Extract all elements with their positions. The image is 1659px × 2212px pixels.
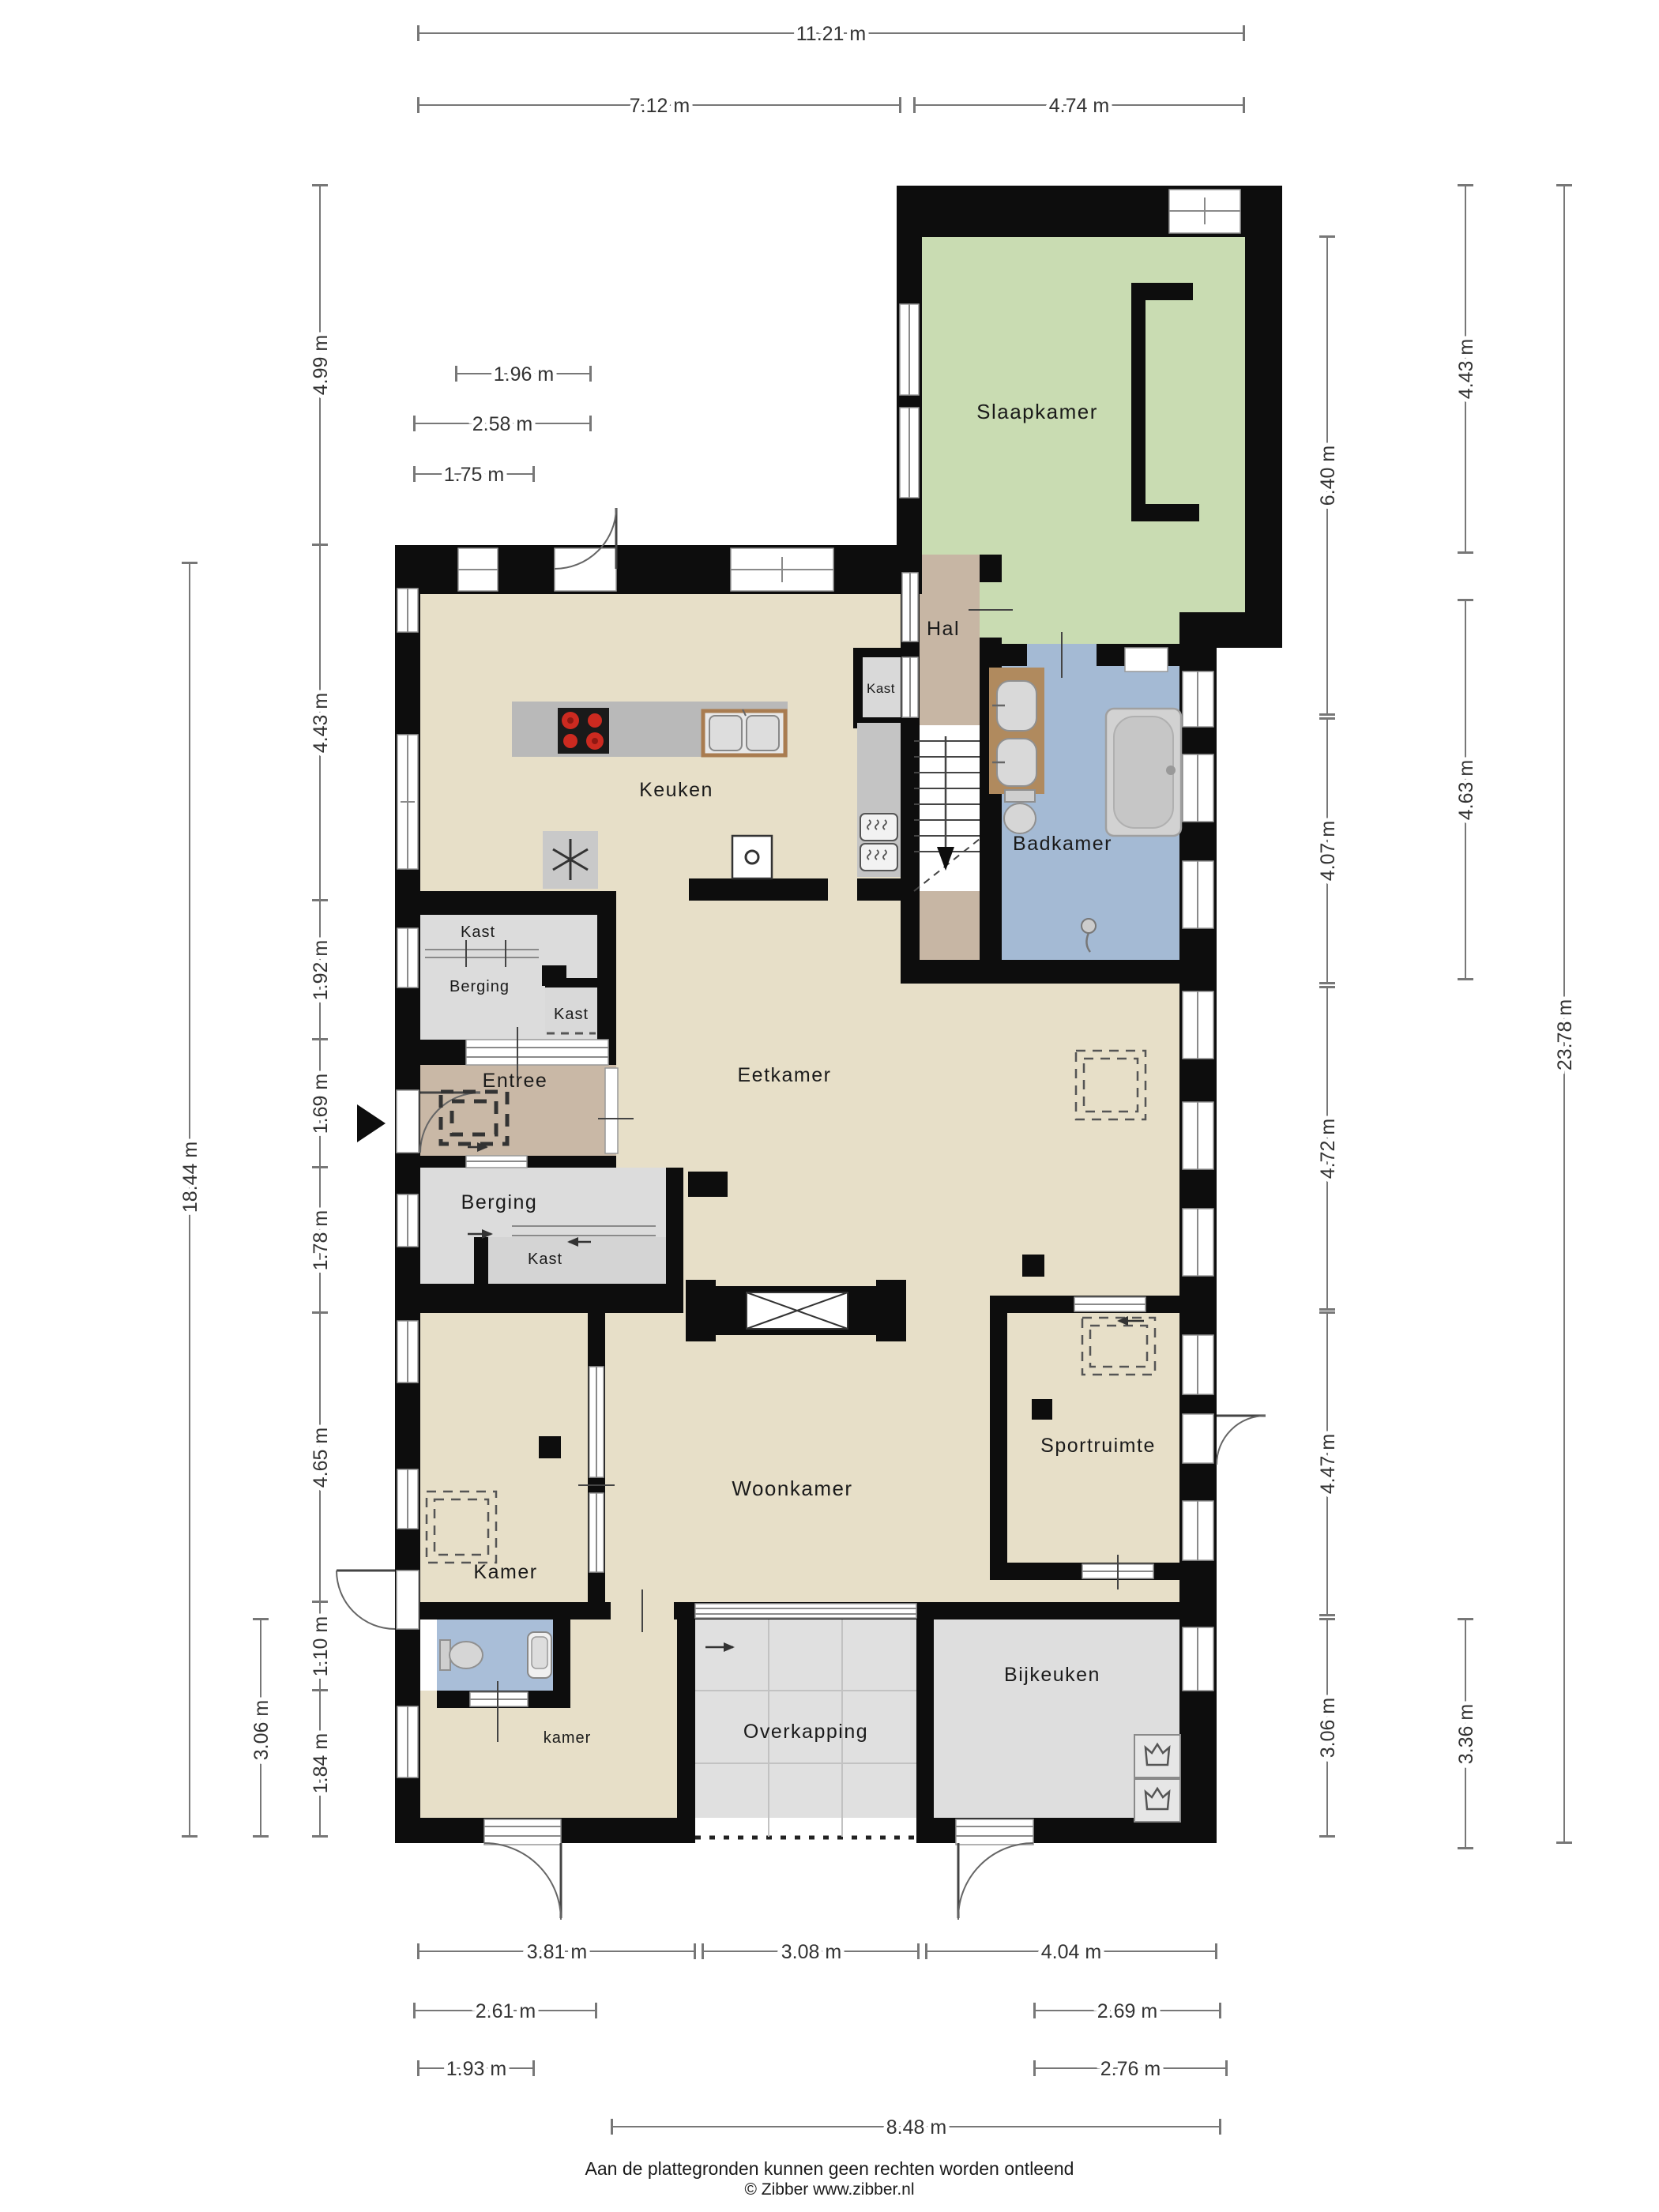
dryer-icon <box>1134 1779 1180 1822</box>
window <box>397 1321 418 1382</box>
wall-cabinet-stub <box>857 878 920 901</box>
svg-text:3.81 m: 3.81 m <box>527 1941 587 1963</box>
svg-text:18.44 m: 18.44 m <box>179 1142 201 1213</box>
room-label-kast-hal: Kast <box>867 681 895 696</box>
entrance-arrow-icon <box>357 1104 386 1142</box>
dim-bottom-1: 3.81 m <box>419 1941 695 1963</box>
dim-bottom-2: 3.08 m <box>703 1941 919 1963</box>
window <box>458 548 498 591</box>
dim-bottom-8: 8.48 m <box>612 2116 1221 2139</box>
window <box>1183 1209 1213 1276</box>
room-label-kast-onder: Kast <box>528 1251 562 1268</box>
door-kamer-bottom <box>484 1819 561 1845</box>
svg-text:1.69 m: 1.69 m <box>310 1074 332 1134</box>
column-kamer <box>539 1436 561 1458</box>
bath-vanity-icon <box>989 668 1044 794</box>
floorplan: Slaapkamer Hal Kast Keuken Badkamer Kast… <box>0 0 1659 2212</box>
wall-block-right <box>597 891 616 1065</box>
dim-left-6: 4.65 m <box>310 1313 332 1602</box>
wall-block-bottom <box>395 1284 683 1313</box>
window <box>900 304 919 395</box>
dim-mini-3: 1.75 m <box>415 464 534 486</box>
dim-left-1: 4.99 m <box>310 186 332 545</box>
svg-text:1.92 m: 1.92 m <box>310 940 332 1000</box>
wall-utility-left <box>916 1619 934 1819</box>
window <box>731 548 833 591</box>
toilet-icon <box>1004 790 1036 833</box>
room-label-kast-klein: Kast <box>554 1006 589 1023</box>
svg-text:2.69 m: 2.69 m <box>1097 2000 1157 2022</box>
window <box>1183 1501 1213 1560</box>
svg-text:1.93 m: 1.93 m <box>446 2058 506 2080</box>
svg-text:4.74 m: 4.74 m <box>1049 95 1109 117</box>
dim-right-mid-1: 4.43 m <box>1455 186 1477 553</box>
wall-kitchen-hall <box>901 594 920 960</box>
svg-text:1.96 m: 1.96 m <box>494 363 554 386</box>
room-label-eetkamer: Eetkamer <box>738 1064 832 1086</box>
door-utility-bottom <box>956 1819 1033 1845</box>
dim-left-5: 1.78 m <box>310 1168 332 1313</box>
wall-smallbath-right <box>553 1619 570 1691</box>
kitchen-island-icon <box>512 702 788 757</box>
wall-kitchen-stub <box>689 878 828 901</box>
door-kitchen-top <box>555 548 616 591</box>
window <box>397 928 418 987</box>
dim-bottom-7: 2.76 m <box>1035 2058 1227 2080</box>
window <box>397 1469 418 1529</box>
svg-text:4.47 m: 4.47 m <box>1317 1434 1339 1494</box>
room-label-kamer: Kamer <box>473 1561 537 1583</box>
footer-copyright: © Zibber www.zibber.nl <box>0 2180 1659 2199</box>
small-bath-niche <box>420 1619 437 1691</box>
svg-text:4.43 m: 4.43 m <box>1455 339 1477 399</box>
bath-niche <box>1125 648 1168 671</box>
svg-text:11.21 m: 11.21 m <box>796 23 866 45</box>
dim-bottom-3: 4.04 m <box>927 1941 1217 1963</box>
interior-window <box>589 1493 604 1572</box>
fireplace-icon <box>686 1280 906 1341</box>
svg-text:2.58 m: 2.58 m <box>472 413 532 435</box>
dim-left-2: 4.43 m <box>310 545 332 901</box>
dim-right-4: 4.47 m <box>1317 1313 1339 1616</box>
closet-bottom-floor <box>488 1237 666 1284</box>
svg-text:3.06 m: 3.06 m <box>250 1700 273 1760</box>
svg-text:4.63 m: 4.63 m <box>1455 760 1477 820</box>
small-toilet-icon <box>440 1640 483 1670</box>
dim-right-2: 4.07 m <box>1317 719 1339 984</box>
svg-text:1.84 m: 1.84 m <box>310 1733 332 1793</box>
dim-right-1: 6.40 m <box>1317 237 1339 715</box>
svg-text:23.78 m: 23.78 m <box>1554 999 1576 1070</box>
wall-kastklein-top <box>545 978 597 987</box>
room-label-keuken: Keuken <box>639 779 713 801</box>
window <box>900 408 919 498</box>
interior-window <box>902 573 918 641</box>
svg-text:6.40 m: 6.40 m <box>1317 446 1339 506</box>
window <box>1183 671 1213 727</box>
oven-cabinet-icon <box>857 723 901 877</box>
room-label-slaapkamer: Slaapkamer <box>976 400 1098 423</box>
dim-mini-1: 1.96 m <box>457 363 591 386</box>
svg-text:1.10 m: 1.10 m <box>310 1616 332 1676</box>
wall-hall-bottom <box>901 960 1181 984</box>
svg-text:3.36 m: 3.36 m <box>1455 1704 1477 1764</box>
room-label-sportruimte: Sportruimte <box>1040 1435 1156 1457</box>
wall-kast-hal-left <box>853 648 863 728</box>
svg-text:2.61 m: 2.61 m <box>476 2000 536 2022</box>
pier-eetkamer <box>688 1172 728 1197</box>
room-label-kast-boven: Kast <box>461 924 495 941</box>
window <box>1183 861 1213 928</box>
window <box>1183 991 1213 1059</box>
dim-bottom-5: 2.69 m <box>1035 2000 1221 2022</box>
sliding-door <box>466 1156 527 1168</box>
window <box>1169 190 1240 233</box>
room-label-overkapping: Overkapping <box>743 1721 868 1743</box>
room-label-berging-boven: Berging <box>450 978 510 995</box>
sliding-door <box>695 1604 916 1618</box>
room-label-badkamer: Badkamer <box>1013 833 1112 855</box>
svg-text:2.76 m: 2.76 m <box>1100 2058 1161 2080</box>
dim-top-left: 7.12 m <box>419 95 901 117</box>
dim-bottom-4: 2.61 m <box>415 2000 596 2022</box>
svg-text:4.65 m: 4.65 m <box>310 1428 332 1488</box>
dim-left-8: 1.84 m <box>310 1691 332 1837</box>
wall-berging2-right <box>666 1168 683 1284</box>
footer-disclaimer: Aan de plattegronden kunnen geen rechten… <box>0 2158 1659 2180</box>
dim-right-3: 4.72 m <box>1317 987 1339 1310</box>
window <box>1183 1335 1213 1394</box>
svg-text:3.06 m: 3.06 m <box>1317 1698 1339 1758</box>
dim-right-outer: 23.78 m <box>1554 186 1576 1843</box>
room-label-bijkeuken: Bijkeuken <box>1004 1664 1100 1686</box>
dim-right-mid-2: 4.63 m <box>1455 600 1477 980</box>
window <box>397 1706 418 1777</box>
svg-text:8.48 m: 8.48 m <box>886 2116 946 2139</box>
window <box>1183 1102 1213 1169</box>
dim-mini-2: 2.58 m <box>415 413 591 435</box>
wall-sport-left <box>990 1296 1007 1580</box>
dim-top-total: 11.21 m <box>419 23 1244 45</box>
window <box>1183 754 1213 822</box>
svg-text:4.07 m: 4.07 m <box>1317 821 1339 881</box>
svg-text:3.08 m: 3.08 m <box>781 1941 841 1963</box>
interior-window <box>902 657 918 717</box>
dim-top-right: 4.74 m <box>915 95 1244 117</box>
svg-text:7.12 m: 7.12 m <box>630 95 690 117</box>
washer-icon <box>1134 1735 1180 1777</box>
dim-bottom-6: 1.93 m <box>419 2058 534 2080</box>
wall-block-top <box>395 891 616 915</box>
column-eetkamer <box>1022 1255 1044 1277</box>
svg-text:4.99 m: 4.99 m <box>310 335 332 395</box>
dim-left-outer: 18.44 m <box>179 563 201 1837</box>
window <box>397 589 418 632</box>
room-label-berging-onder: Berging <box>461 1191 538 1213</box>
window <box>1183 1627 1213 1691</box>
dim-left-3: 1.92 m <box>310 901 332 1040</box>
room-label-woonkamer: Woonkamer <box>732 1477 852 1500</box>
bathtub-icon <box>1106 709 1181 836</box>
hob-unit-icon <box>732 836 772 878</box>
wall-kamerklein-right <box>677 1619 695 1819</box>
room-label-kamer-klein: kamer <box>544 1729 592 1747</box>
svg-text:4.72 m: 4.72 m <box>1317 1119 1339 1179</box>
svg-text:4.43 m: 4.43 m <box>310 693 332 753</box>
dim-left-4: 1.69 m <box>310 1040 332 1168</box>
door-kamer-left <box>397 1571 419 1629</box>
dim-right-mid-3: 3.36 m <box>1455 1619 1477 1849</box>
room-label-entree: Entree <box>483 1070 548 1092</box>
small-sink-icon <box>528 1632 551 1678</box>
sink-icon <box>703 709 785 755</box>
wall-bedroom-right <box>1245 186 1282 648</box>
svg-text:4.04 m: 4.04 m <box>1041 1941 1101 1963</box>
room-label-hal: Hal <box>927 618 960 640</box>
interior-window <box>1074 1297 1145 1311</box>
window <box>397 1194 418 1247</box>
wall-step <box>1179 612 1282 648</box>
dim-left-7: 1.10 m <box>310 1602 332 1691</box>
window <box>397 735 418 869</box>
ventilation-icon <box>543 831 598 889</box>
svg-text:1.75 m: 1.75 m <box>444 464 504 486</box>
front-door <box>397 1090 419 1153</box>
interior-window <box>589 1367 604 1477</box>
column-sport <box>1032 1399 1052 1420</box>
wall-kast3-left <box>474 1237 488 1284</box>
floor-areas <box>419 190 1274 1842</box>
dim-left-306: 3.06 m <box>250 1619 273 1837</box>
svg-text:1.78 m: 1.78 m <box>310 1210 332 1270</box>
door-sport <box>1183 1414 1213 1463</box>
dim-right-5: 3.06 m <box>1317 1619 1339 1837</box>
